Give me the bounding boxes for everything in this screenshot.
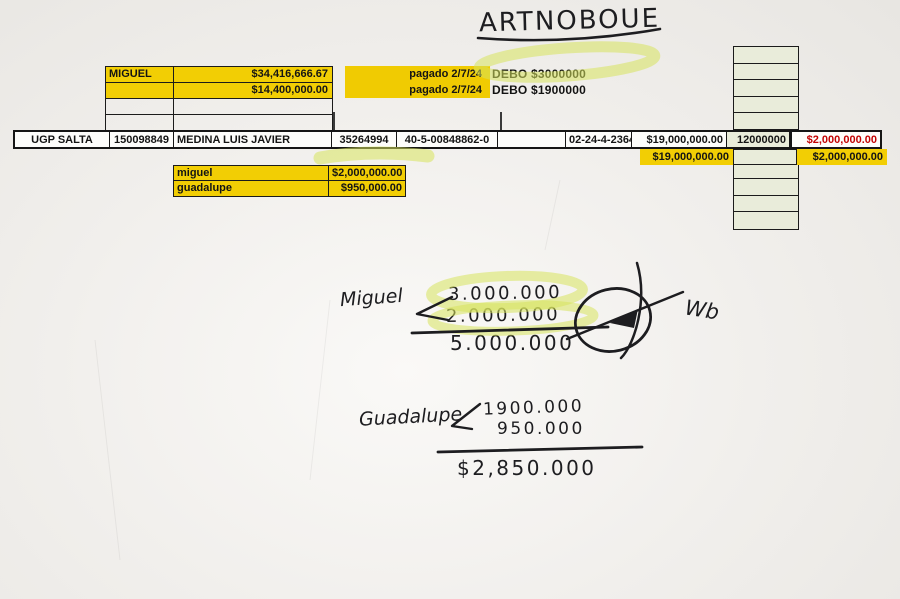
table-row [106, 99, 332, 115]
grid-cell [734, 64, 798, 81]
grid-cell [734, 113, 798, 130]
payee-cell [106, 99, 174, 115]
subtotal-amount-right: $2,000,000.00 [797, 149, 887, 165]
payee-cell: MIGUEL [106, 67, 174, 83]
table-row: $14,400,000.00 [106, 83, 332, 99]
signature-loop [569, 281, 658, 360]
paper-crease [95, 340, 120, 560]
red-amount-cell: $2,000,000.00 [790, 132, 880, 147]
scanned-document: MIGUEL $34,416,666.67 $14,400,000.00 pag… [0, 0, 900, 599]
file-number-cell: 150098849 [110, 132, 174, 147]
grid-cell [734, 196, 798, 213]
grid-cell [733, 149, 797, 165]
paid-note: pagado 2/7/24 [345, 82, 490, 98]
paper-crease [310, 300, 330, 480]
subtotal-row: $19,000,000.00 $2,000,000.00 [640, 149, 887, 165]
handwritten-name-miguel: Miguel [339, 285, 403, 311]
marker-swipe [320, 153, 428, 158]
amount-cell: $19,000,000.00 [632, 132, 727, 147]
person-name-cell: MEDINA LUIS JAVIER [174, 132, 332, 147]
payee-cell [106, 115, 174, 131]
split-table: miguel $2,000,000.00 guadalupe $950,000.… [173, 165, 406, 197]
amount-cell: $950,000.00 [329, 181, 405, 196]
name-cell: miguel [174, 166, 329, 181]
amount-cell: $14,400,000.00 [174, 83, 332, 99]
table-row [106, 115, 332, 131]
handwritten-addend: 3.000.000 [448, 282, 562, 305]
document-number-cell: 35264994 [332, 132, 397, 147]
signature-arrowhead [610, 309, 638, 328]
handwritten-total: $2,850.000 [457, 456, 597, 480]
table-row: guadalupe $950,000.00 [174, 181, 405, 196]
debt-note: DEBO $1900000 [492, 83, 586, 98]
grid-cell [734, 47, 798, 64]
subtotal-amount: $19,000,000.00 [640, 149, 733, 165]
figure-cell: 12000000 [727, 132, 790, 147]
handwritten-name-guadalupe: Guadalupe [358, 403, 462, 430]
grid-line [500, 112, 502, 130]
guadalupe-sum-line [438, 447, 642, 452]
amount-cell [174, 115, 332, 131]
payee-cell [106, 83, 174, 99]
grid-cell [734, 179, 798, 196]
ledger-row: UGP SALTA 150098849 MEDINA LUIS JAVIER 3… [13, 130, 882, 149]
account-number-cell: 40-5-00848862-0 [397, 132, 498, 147]
table-row: MIGUEL $34,416,666.67 [106, 67, 332, 83]
handwritten-addend: 1900.000 [483, 396, 585, 420]
office-cell: UGP SALTA [15, 132, 110, 147]
amount-cell: $2,000,000.00 [329, 166, 405, 181]
signature-stroke [621, 263, 641, 358]
paper-crease [545, 180, 560, 250]
handwritten-title: ARTNOBOUE [479, 4, 661, 39]
payments-table: MIGUEL $34,416,666.67 $14,400,000.00 [105, 66, 333, 132]
handwritten-initials: Wb [683, 295, 720, 324]
name-cell: guadalupe [174, 181, 329, 196]
amount-cell: $34,416,666.67 [174, 67, 332, 83]
grid-cell [734, 97, 798, 114]
signature-arrow [567, 292, 683, 339]
handwritten-addend: 2.000.000 [446, 304, 560, 327]
paid-note: pagado 2/7/24 [345, 66, 490, 82]
grid-cell [734, 80, 798, 97]
debt-note: DEBO $3000000 [492, 67, 586, 82]
handwritten-total: 5.000.000 [450, 331, 574, 355]
grid-line [333, 112, 335, 130]
grid-cell [734, 212, 798, 229]
amount-cell [174, 99, 332, 115]
table-row: miguel $2,000,000.00 [174, 166, 405, 181]
empty-cell [498, 132, 566, 147]
handwritten-addend: 950.000 [497, 419, 585, 439]
code-cell: 02-24-4-2364 [566, 132, 632, 147]
